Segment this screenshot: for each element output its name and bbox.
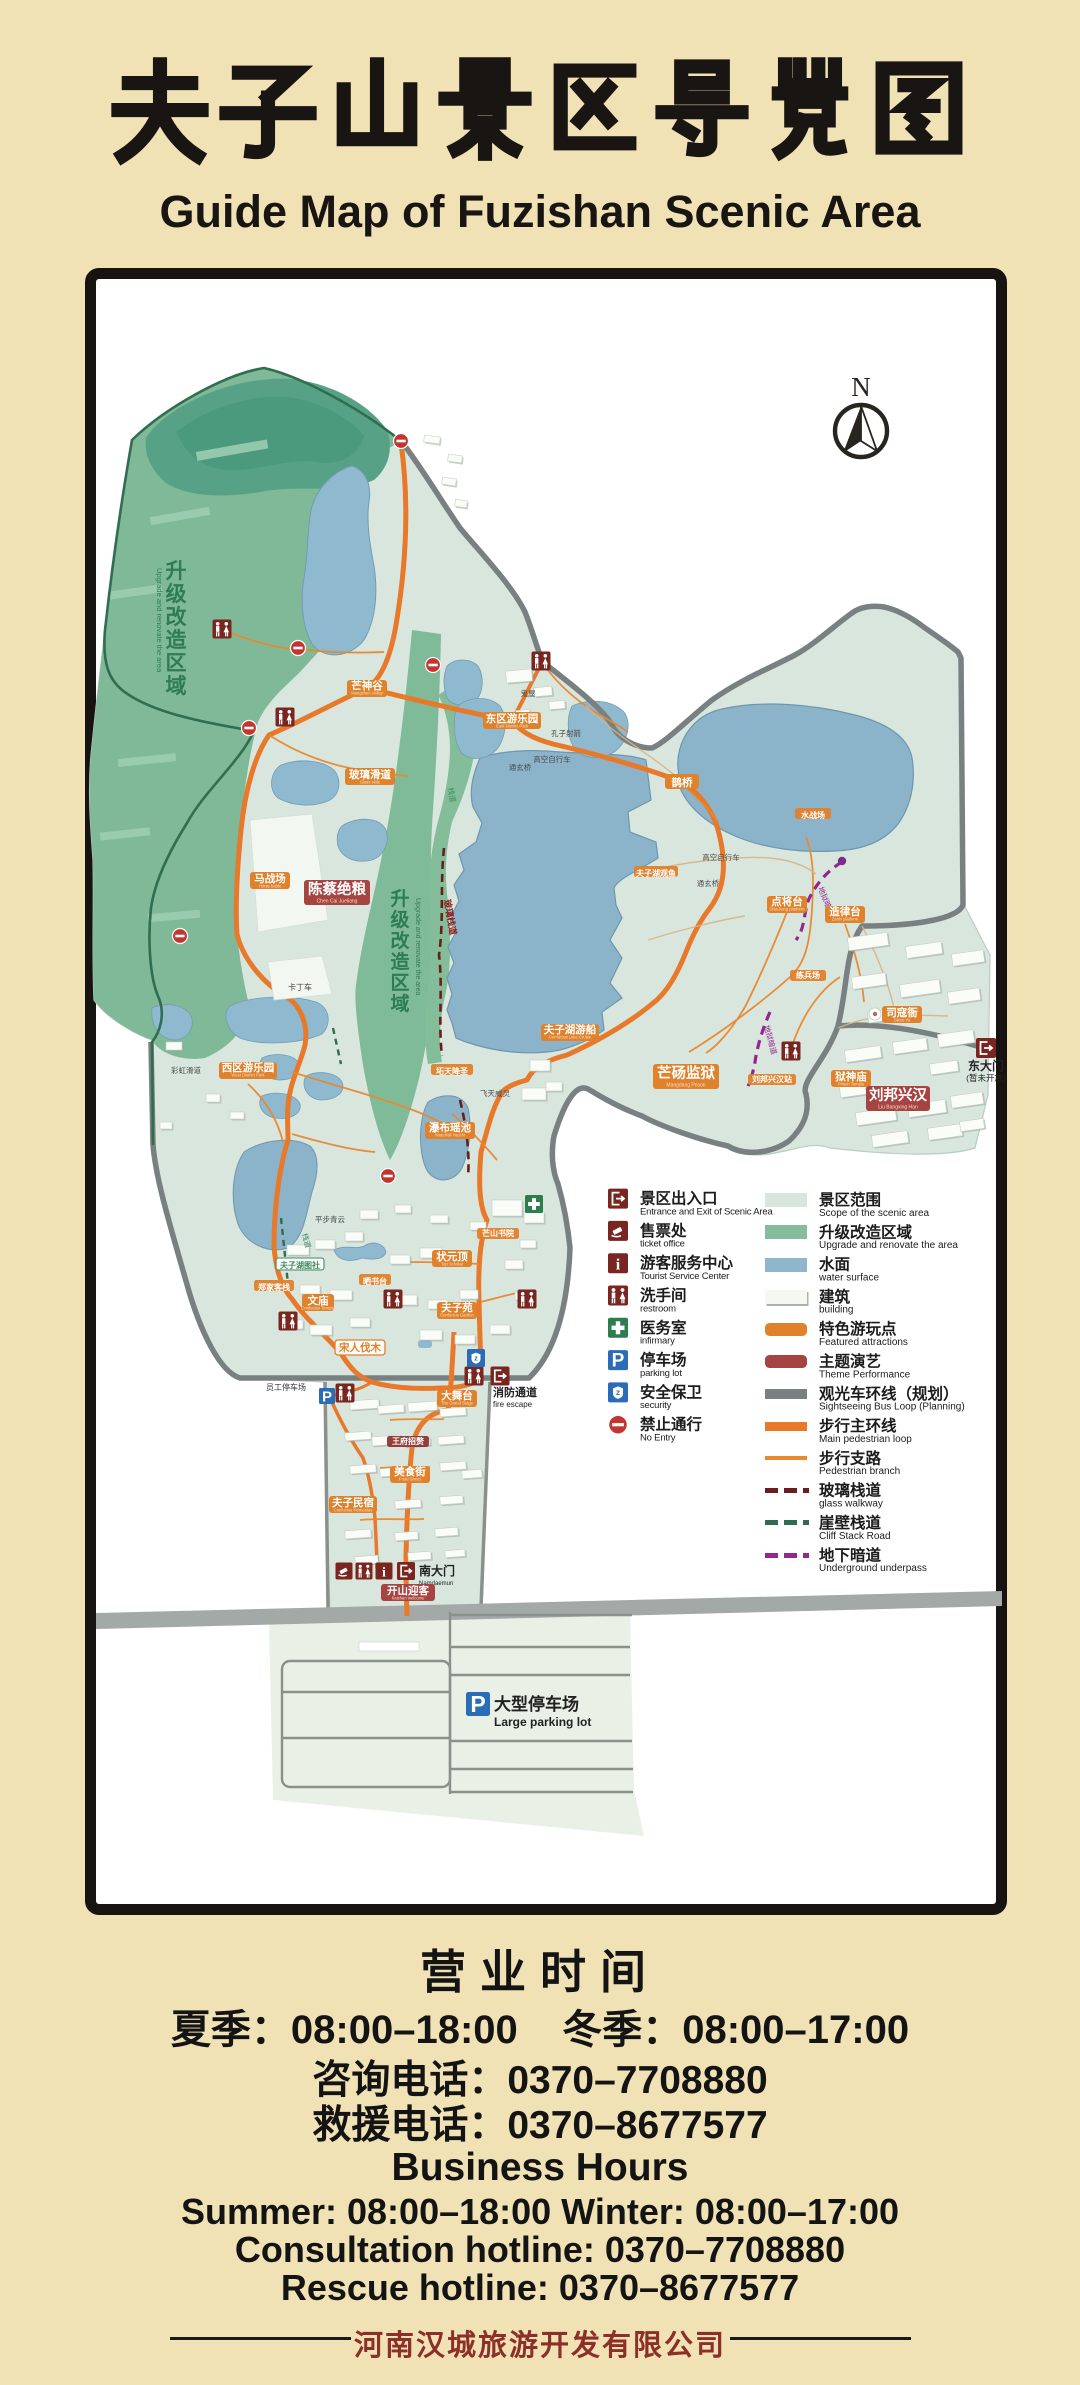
svg-text:步行支路: 步行支路 bbox=[819, 1448, 882, 1467]
svg-text:water surface: water surface bbox=[818, 1272, 879, 1283]
svg-text:P: P bbox=[612, 1351, 625, 1372]
svg-text:宋人伐木: 宋人伐木 bbox=[338, 1341, 381, 1354]
svg-text:Mangdang Prison: Mangdang Prison bbox=[666, 1082, 705, 1088]
svg-text:玻璃栈道: 玻璃栈道 bbox=[819, 1481, 882, 1500]
svg-text:景区出入口: 景区出入口 bbox=[640, 1189, 718, 1208]
svg-text:升级改造区域: 升级改造区域 bbox=[819, 1222, 913, 1241]
svg-text:No Entry: No Entry bbox=[640, 1433, 676, 1444]
svg-text:Liu Bangxing Han: Liu Bangxing Han bbox=[878, 1104, 918, 1110]
svg-text:升级改造区域: 升级改造区域 bbox=[166, 560, 188, 698]
svg-text:P: P bbox=[470, 1691, 485, 1717]
svg-text:West District Park: West District Park bbox=[231, 1072, 265, 1077]
svg-text:z: z bbox=[474, 1356, 478, 1363]
svg-text:Featured attractions: Featured attractions bbox=[819, 1337, 908, 1348]
svg-text:restroom: restroom bbox=[640, 1303, 676, 1314]
svg-text:医务室: 医务室 bbox=[640, 1318, 687, 1337]
svg-text:消防通道: 消防通道 bbox=[493, 1385, 537, 1399]
svg-text:夫子湖观鱼: 夫子湖观鱼 bbox=[635, 868, 676, 878]
svg-text:Upgrade and renovate the area: Upgrade and renovate the area bbox=[155, 568, 164, 673]
svg-text:特色游玩点: 特色游玩点 bbox=[819, 1319, 897, 1338]
svg-text:Food Street: Food Street bbox=[399, 1476, 422, 1481]
svg-text:infirmary: infirmary bbox=[640, 1336, 675, 1347]
svg-text:Kaishan welcome: Kaishan welcome bbox=[392, 1595, 425, 1600]
svg-text:孔子射箭: 孔子射箭 bbox=[551, 728, 581, 738]
svg-text:东大门: 东大门 bbox=[968, 1058, 1004, 1073]
svg-text:鹊桥: 鹊桥 bbox=[672, 776, 693, 789]
svg-text:主题演艺: 主题演艺 bbox=[819, 1352, 881, 1371]
svg-text:平步青云: 平步青云 bbox=[315, 1214, 345, 1224]
svg-text:卡丁车: 卡丁车 bbox=[288, 982, 312, 992]
svg-text:Mangshen Valley: Mangshen Valley bbox=[351, 690, 384, 695]
svg-text:N: N bbox=[851, 372, 871, 402]
svg-text:通玄桥: 通玄桥 bbox=[509, 762, 532, 772]
svg-text:ticket office: ticket office bbox=[640, 1239, 685, 1250]
svg-text:Zaolv platform: Zaolv platform bbox=[832, 916, 859, 921]
svg-text:郑家客栈: 郑家客栈 bbox=[258, 1282, 290, 1292]
svg-text:练兵场: 练兵场 bbox=[796, 970, 820, 980]
svg-text:i: i bbox=[382, 1565, 386, 1580]
svg-text:建筑: 建筑 bbox=[819, 1287, 851, 1306]
svg-text:彩虹滑道: 彩虹滑道 bbox=[171, 1065, 201, 1075]
svg-text:停车场: 停车场 bbox=[640, 1350, 687, 1369]
svg-text:晒书台: 晒书台 bbox=[363, 1276, 387, 1286]
svg-text:Large parking lot: Large parking lot bbox=[494, 1715, 591, 1729]
svg-text:飞天威灵: 飞天威灵 bbox=[480, 1088, 510, 1098]
svg-text:Prison Temple: Prison Temple bbox=[838, 1081, 865, 1086]
svg-text:员工停车场: 员工停车场 bbox=[266, 1382, 306, 1392]
svg-text:fire escape: fire escape bbox=[493, 1400, 533, 1409]
svg-text:南大门: 南大门 bbox=[419, 1563, 455, 1578]
svg-text:parking lot: parking lot bbox=[640, 1368, 682, 1379]
svg-text:安全保卫: 安全保卫 bbox=[640, 1382, 703, 1401]
svg-text:水面: 水面 bbox=[819, 1255, 850, 1274]
svg-text:王府招赘: 王府招赘 bbox=[392, 1436, 425, 1446]
svg-text:glass walkway: glass walkway bbox=[819, 1499, 883, 1510]
svg-text:Tourist Service Center: Tourist Service Center bbox=[640, 1271, 729, 1282]
svg-text:陈蔡绝粮: 陈蔡绝粮 bbox=[308, 880, 366, 898]
svg-text:夫子湖图社: 夫子湖图社 bbox=[279, 1260, 320, 1270]
svg-text:security: security bbox=[640, 1400, 672, 1411]
svg-text:通玄桥: 通玄桥 bbox=[697, 878, 720, 888]
svg-text:大型停车场: 大型停车场 bbox=[494, 1694, 579, 1714]
svg-text:水战场: 水战场 bbox=[800, 810, 825, 820]
svg-text:洗手间: 洗手间 bbox=[640, 1286, 687, 1305]
svg-text:East District Park: East District Park bbox=[496, 723, 529, 728]
svg-text:Underground underpass: Underground underpass bbox=[819, 1563, 927, 1574]
svg-text:禁止通行: 禁止通行 bbox=[640, 1415, 703, 1434]
svg-text:售票处: 售票处 bbox=[640, 1221, 687, 1240]
svg-text:高空自行车: 高空自行车 bbox=[533, 754, 571, 764]
svg-text:DianJiang platform: DianJiang platform bbox=[770, 906, 805, 911]
svg-text:Pedestrian branch: Pedestrian branch bbox=[819, 1466, 900, 1477]
svg-text:升级改造区域: 升级改造区域 bbox=[390, 888, 410, 1015]
svg-text:building: building bbox=[819, 1305, 853, 1316]
svg-text:鬼屋: 鬼屋 bbox=[521, 688, 536, 698]
svg-text:Sightseeing Bus Loop (Planning: Sightseeing Bus Loop (Planning) bbox=[819, 1402, 965, 1413]
svg-text:地下暗道: 地下暗道 bbox=[819, 1545, 882, 1564]
svg-text:Scope of the scenic area: Scope of the scenic area bbox=[819, 1208, 930, 1219]
svg-text:Cliff Stack Road: Cliff Stack Road bbox=[819, 1531, 891, 1542]
svg-text:高空自行车: 高空自行车 bbox=[702, 852, 740, 862]
svg-text:z: z bbox=[616, 1388, 620, 1397]
svg-text:Main pedestrian loop: Main pedestrian loop bbox=[819, 1434, 912, 1445]
svg-text:The Grand Stage: The Grand Stage bbox=[441, 1400, 474, 1405]
svg-text:Confucian Temple: Confucian Temple bbox=[301, 1305, 335, 1310]
svg-text:Confucius Garden: Confucius Garden bbox=[440, 1312, 474, 1317]
svg-text:Top Scholar: Top Scholar bbox=[441, 1261, 464, 1266]
svg-text:Chen Cai Jueliang: Chen Cai Jueliang bbox=[317, 898, 358, 904]
svg-text:Confucius Homestay: Confucius Homestay bbox=[334, 1507, 374, 1512]
svg-text:景区范围: 景区范围 bbox=[819, 1190, 881, 1209]
svg-text:Waterfall Yaochi: Waterfall Yaochi bbox=[435, 1132, 465, 1137]
svg-text:Theme Performance: Theme Performance bbox=[819, 1369, 911, 1380]
svg-text:Horse battle: Horse battle bbox=[259, 883, 282, 888]
svg-text:崖壁栈道: 崖壁栈道 bbox=[819, 1513, 882, 1532]
svg-text:Entrance and Exit of Scenic Ar: Entrance and Exit of Scenic Area bbox=[640, 1206, 773, 1217]
svg-text:Confucius Lake Cruise: Confucius Lake Cruise bbox=[549, 1034, 592, 1039]
svg-text:P: P bbox=[322, 1388, 332, 1405]
svg-text:Upgrade and renovate the area: Upgrade and renovate the area bbox=[414, 898, 421, 995]
svg-text:(暂未开放): (暂未开放) bbox=[966, 1073, 1006, 1083]
svg-text:坧天降圣: 坧天降圣 bbox=[436, 1066, 469, 1076]
svg-text:芒山书院: 芒山书院 bbox=[482, 1228, 514, 1238]
svg-text:步行主环线: 步行主环线 bbox=[819, 1416, 897, 1435]
svg-text:刘邦兴汉: 刘邦兴汉 bbox=[869, 1086, 927, 1104]
svg-text:Upgrade and renovate the area: Upgrade and renovate the area bbox=[819, 1240, 958, 1251]
svg-text:游客服务中心: 游客服务中心 bbox=[640, 1253, 734, 1272]
svg-text:Sikou Ya: Sikou Ya bbox=[894, 1017, 911, 1022]
svg-text:i: i bbox=[616, 1257, 621, 1274]
svg-text:观光车环线（规划）: 观光车环线（规划） bbox=[819, 1384, 959, 1403]
svg-text:芒砀监狱: 芒砀监狱 bbox=[657, 1064, 715, 1082]
svg-text:Glass slide: Glass slide bbox=[360, 779, 381, 784]
svg-text:刘邦兴汉站: 刘邦兴汉站 bbox=[752, 1074, 792, 1084]
